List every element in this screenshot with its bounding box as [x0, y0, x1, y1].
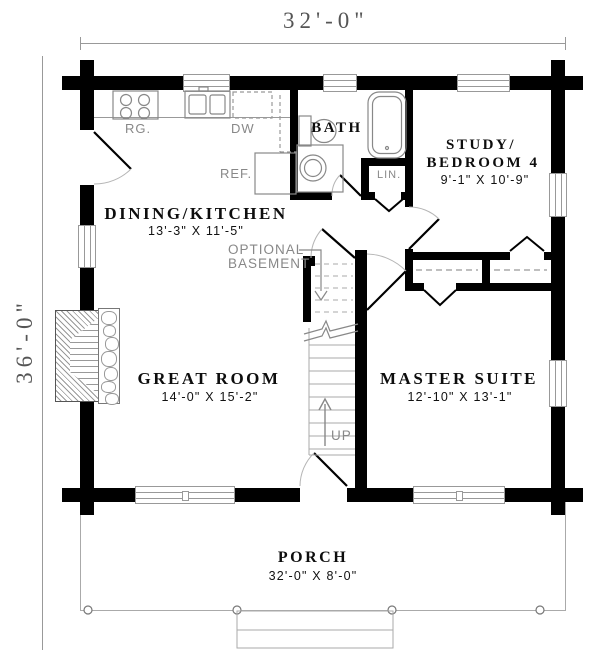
room-size-porch: 32'-0" X 8'-0": [269, 569, 358, 583]
room-label-bath: BATH: [311, 120, 362, 137]
door-arc-basement: [311, 229, 322, 258]
label-optional-basement-line2: BASEMENT: [228, 256, 310, 271]
door-arc-master: [367, 254, 406, 271]
door-leaf-master: [367, 271, 406, 310]
door-arc-study: [409, 207, 439, 219]
label-refrigerator: REF.: [220, 166, 252, 181]
room-size-great-room: 14'-0" X 15'-2": [162, 390, 259, 404]
room-label-dining-kitchen: DINING/KITCHEN: [104, 204, 287, 224]
label-optional-basement-line1: OPTIONAL: [228, 242, 304, 257]
bifold-linen: [375, 199, 403, 211]
room-label-master-suite: MASTER SUITE: [380, 369, 538, 389]
door-leaf-basement: [322, 229, 355, 258]
vanity-sink-icon: [297, 145, 343, 192]
porch-columns: [84, 606, 544, 614]
door-leaf-dining: [94, 132, 131, 169]
sink-icon: [185, 87, 230, 118]
room-label-porch: PORCH: [278, 549, 348, 567]
room-label-study-line2: BEDROOM 4: [427, 155, 540, 172]
room-size-study: 9'-1" X 10'-9": [441, 173, 530, 187]
room-label-study-line1: STUDY/: [446, 137, 516, 154]
bifold-doors: [375, 199, 544, 305]
room-size-master-suite: 12'-10" X 13'-1": [407, 390, 512, 404]
door-arc-dining: [94, 169, 131, 184]
stair-break-line: [304, 321, 358, 341]
label-range: RG.: [125, 121, 151, 136]
door-arc-bath: [332, 175, 340, 196]
door-leaf-study: [409, 219, 439, 249]
bathtub-icon: [368, 92, 406, 158]
window-mullion: [456, 491, 463, 501]
floor-plan: 32'-0" 36'-0": [0, 0, 600, 658]
range-icon: [113, 91, 158, 119]
label-stairs-up: UP: [331, 428, 352, 443]
label-dishwasher: DW: [231, 121, 255, 136]
door-arc-front-entry: [300, 453, 314, 486]
bifold-study-closet: [510, 237, 544, 251]
porch-steps: [237, 611, 393, 648]
window-mullion: [182, 491, 189, 501]
door-leaf-front-entry: [314, 453, 347, 486]
bifold-master-closet: [424, 290, 456, 305]
room-label-great-room: GREAT ROOM: [138, 369, 281, 389]
refrigerator-icon: [255, 153, 296, 194]
door-leaves: [94, 132, 439, 486]
room-size-dining-kitchen: 13'-3" X 11'-5": [148, 224, 244, 238]
label-linen-closet: LIN.: [377, 169, 401, 181]
